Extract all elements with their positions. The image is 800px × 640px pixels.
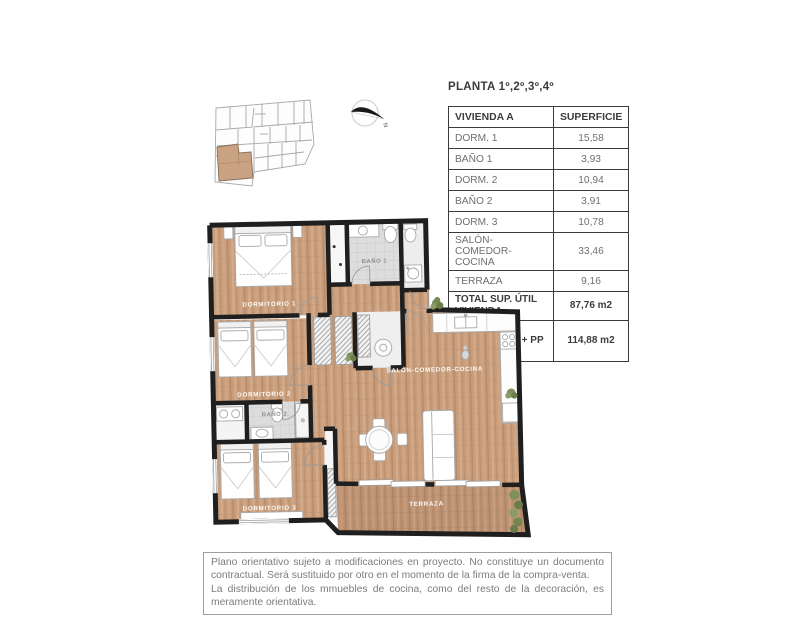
dorm3-label: DORMITORIO 3: [243, 505, 297, 513]
dorm2-label: DORMITORIO 2: [237, 391, 291, 399]
window: [212, 459, 218, 493]
disclaimer-box: Plano orientativo sujeto a modificacione…: [203, 552, 612, 615]
table-header-row: VIVIENDA A SUPERFICIE: [449, 107, 629, 128]
sofa: [423, 410, 455, 481]
table-row: DORM. 210,94: [449, 170, 629, 191]
header-superficie: SUPERFICIE: [554, 107, 629, 128]
window: [239, 518, 289, 524]
corridor-wardrobe-left: [314, 317, 332, 365]
compass-n-label: N: [381, 122, 388, 128]
bano2-label: BAÑO 2: [262, 411, 288, 419]
header-vivienda: VIVIENDA A: [449, 107, 554, 128]
boiler: [375, 339, 392, 356]
bano1-label: BAÑO 1: [362, 258, 388, 266]
hall-floor: [329, 283, 403, 315]
plant-icon: [430, 297, 443, 310]
apartment-floor-plan: DORMITORIO 1 BAÑO 1 DORMITORIO 2 BAÑO 2 …: [195, 212, 540, 553]
table-row: BAÑO 13,93: [449, 149, 629, 170]
table-row: BAÑO 23,91: [449, 191, 629, 212]
entry-floor: [402, 290, 429, 312]
floor-plan-sheet: N PLANTA 1º,2º,3º,4º VIVIENDA A SUPERFIC…: [0, 0, 800, 640]
tech-shelf: [358, 315, 371, 357]
dorm1-label: DORMITORIO 1: [242, 300, 296, 308]
terraza-label: TERRAZA: [409, 500, 444, 508]
table-row: DORM. 115,58: [449, 128, 629, 149]
terraza-floor: [336, 480, 528, 539]
disclaimer-paragraph-2: La distribución de los mmuebles de cocin…: [211, 583, 604, 610]
north-compass: N: [348, 98, 392, 134]
window: [210, 337, 216, 371]
window: [208, 243, 214, 277]
page-title: PLANTA 1º,2º,3º,4º: [448, 81, 554, 93]
building-key-plan: [208, 96, 318, 188]
nook-appliances: [216, 407, 242, 422]
double-bed: [224, 225, 303, 287]
disclaimer-paragraph-1: Plano orientativo sujeto a modificacione…: [211, 556, 604, 583]
